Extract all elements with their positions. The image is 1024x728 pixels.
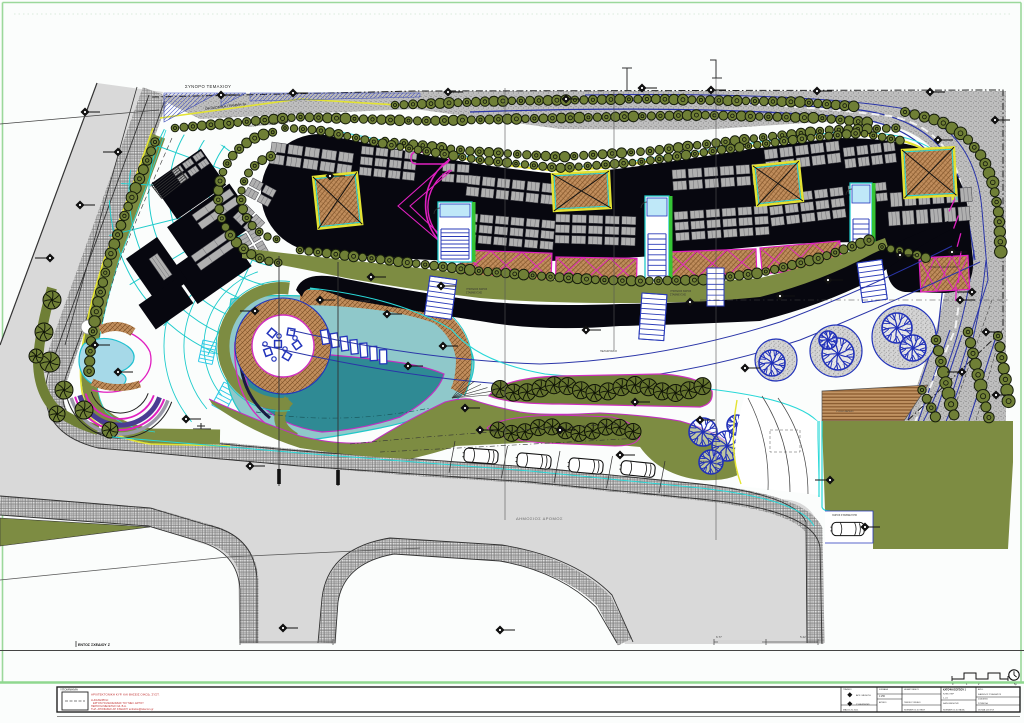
svg-text:ΣΥΝΟΡΟ ΤΕΜΑΧΙΟΥ: ΣΥΝΟΡΟ ΤΕΜΑΧΙΟΥ [185,84,231,89]
svg-text:1_01: 1_01 [943,698,949,700]
svg-text:ΚΑΤΟΨΗ ΙΣΟΓΕΙΟΥ 1: ΚΑΤΟΨΗ ΙΣΟΓΕΙΟΥ 1 [943,689,967,692]
svg-text:ΓΕΝΙΚΟ ΣΧΕΔΙΟ: ΓΕΝΙΚΟ ΣΧΕΔΙΟ [904,701,921,704]
svg-text:ΓΡΑΦΕΙΟ: ΓΡΑΦΕΙΟ [843,688,852,691]
svg-text:ΣΤΑΘΜΕΥΣΗΣ: ΣΤΑΘΜΕΥΣΗΣ [670,294,687,297]
svg-text:ΑΡΧΙΤΕΚΤΟΝΙΚΗ ΚΥΡ. ΚΑΙ ΦΑΣΕΙΣ: ΑΡΧΙΤΕΚΤΟΝΙΚΗ ΚΥΡ. ΚΑΙ ΦΑΣΕΙΣ ΟΙΚΟΔ. ΣΥΣ… [91,693,160,697]
svg-text:ΥΠΟΓΕΙΟΣ ΧΩΡΟΣ ΣΤΑΘΜ.: ΥΠΟΓΕΙΟΣ ΧΩΡΟΣ ΣΤΑΘΜ. [928,266,959,269]
svg-text:ΠΕΖΟΔΡΟΜΟΣ: ΠΕΖΟΔΡΟΜΟΣ [600,350,617,353]
svg-text:20406555: 20406555 [978,699,989,701]
svg-text:ΘΕΜΑ ΣΧΕΔΙΟΥ: ΘΕΜΑ ΣΧΕΔΙΟΥ [904,688,920,691]
svg-text:ΣΤΑΘΜΕΥΣΗΣ: ΣΤΑΘΜΕΥΣΗΣ [466,292,483,295]
svg-text:ΚΛΙΜΑΚΑ: ΚΛΙΜΑΚΑ [879,688,889,691]
svg-text:ΥΠΟΜΝΗΜΑ: ΥΠΟΜΝΗΜΑ [60,688,78,692]
svg-text:ΠΡΑΣΙΝΟ: ΠΡΑΣΙΝΟ [700,460,710,463]
svg-text:ΑΡΙΘ.: ΑΡΙΘ. [978,688,984,691]
svg-text:ΣΥΜΒΟΛΑ: ΣΥΜΒΟΛΑ [978,702,988,705]
svg-text:ΝΟΕΜΒΡΙΟΣ 20 ΘΑΛΙΑ: ΝΟΕΜΒΡΙΟΣ 20 ΘΑΛΙΑ [943,709,965,712]
svg-text:ΜΑΙΟΣ 20 2011: ΜΑΙΟΣ 20 2011 [843,709,859,712]
svg-text:ΤΗΛ. ΑΠΟΦΑΣΗΣ ΑΡ. ΣΧΕΔΙΟΥ ambe: ΤΗΛ. ΑΠΟΦΑΣΗΣ ΑΡ. ΣΧΕΔΙΟΥ ambelos@teleco… [91,707,154,711]
svg-text:ΣΕΛΙΔΑ 1/20 ΦΥΛ: ΣΕΛΙΔΑ 1/20 ΦΥΛ [978,709,995,712]
svg-text:ΧΩΡΟΣ ΣΤΑΘΜΕΥΣΗΣ: ΧΩΡΟΣ ΣΤΑΘΜΕΥΣΗΣ [832,514,858,517]
svg-text:ΦΑΚΕΛΟΣ ΣΧΕΔ ΑΡ.23: ΦΑΚΕΛΟΣ ΣΧΕΔ ΑΡ.23 [978,693,1002,696]
svg-text:ΞΥΛΙΝΟ ΔΑΠΕΔΟ: ΞΥΛΙΝΟ ΔΑΠΕΔΟ [836,410,854,413]
svg-text:5.42: 5.42 [800,635,806,639]
svg-text:ΕΝΤΟΣ ΣΧΕΔΙΟΥ Ζ: ΕΝΤΟΣ ΣΧΕΔΙΟΥ Ζ [78,643,111,647]
svg-text:ΑΡΧΕΙΟ: ΑΡΧΕΙΟ [879,701,887,704]
svg-text:ΠΛΑΤΕΙΑ: ΠΛΑΤΕΙΑ [360,300,370,303]
svg-text:ΝΟΕΜΒΡΙΟΣ 20 ΘΕΣΗ: ΝΟΕΜΒΡΙΟΣ 20 ΘΕΣΗ [904,710,925,712]
svg-text:ΑΡΧ. ΜΕΛΕΤΗ: ΑΡΧ. ΜΕΛΕΤΗ [856,694,871,697]
svg-text:ΔΗΜΟΣΙΟΣ ΔΡΟΜΟΣ: ΔΗΜΟΣΙΟΣ ΔΡΟΜΟΣ [516,516,563,521]
svg-text:ΦΑΣΗ ΜΕΛΕΤΗΣ: ΦΑΣΗ ΜΕΛΕΤΗΣ [943,702,959,705]
svg-text:1:250: 1:250 [879,695,886,698]
svg-text:6.77: 6.77 [716,635,722,639]
svg-text:ΣΥΝΕΡΓΑΤΕΣ: ΣΥΝΕΡΓΑΤΕΣ [856,703,870,706]
svg-text:ΚΛΙΜ. ΠΕΡ: ΚΛΙΜ. ΠΕΡ [943,694,955,696]
